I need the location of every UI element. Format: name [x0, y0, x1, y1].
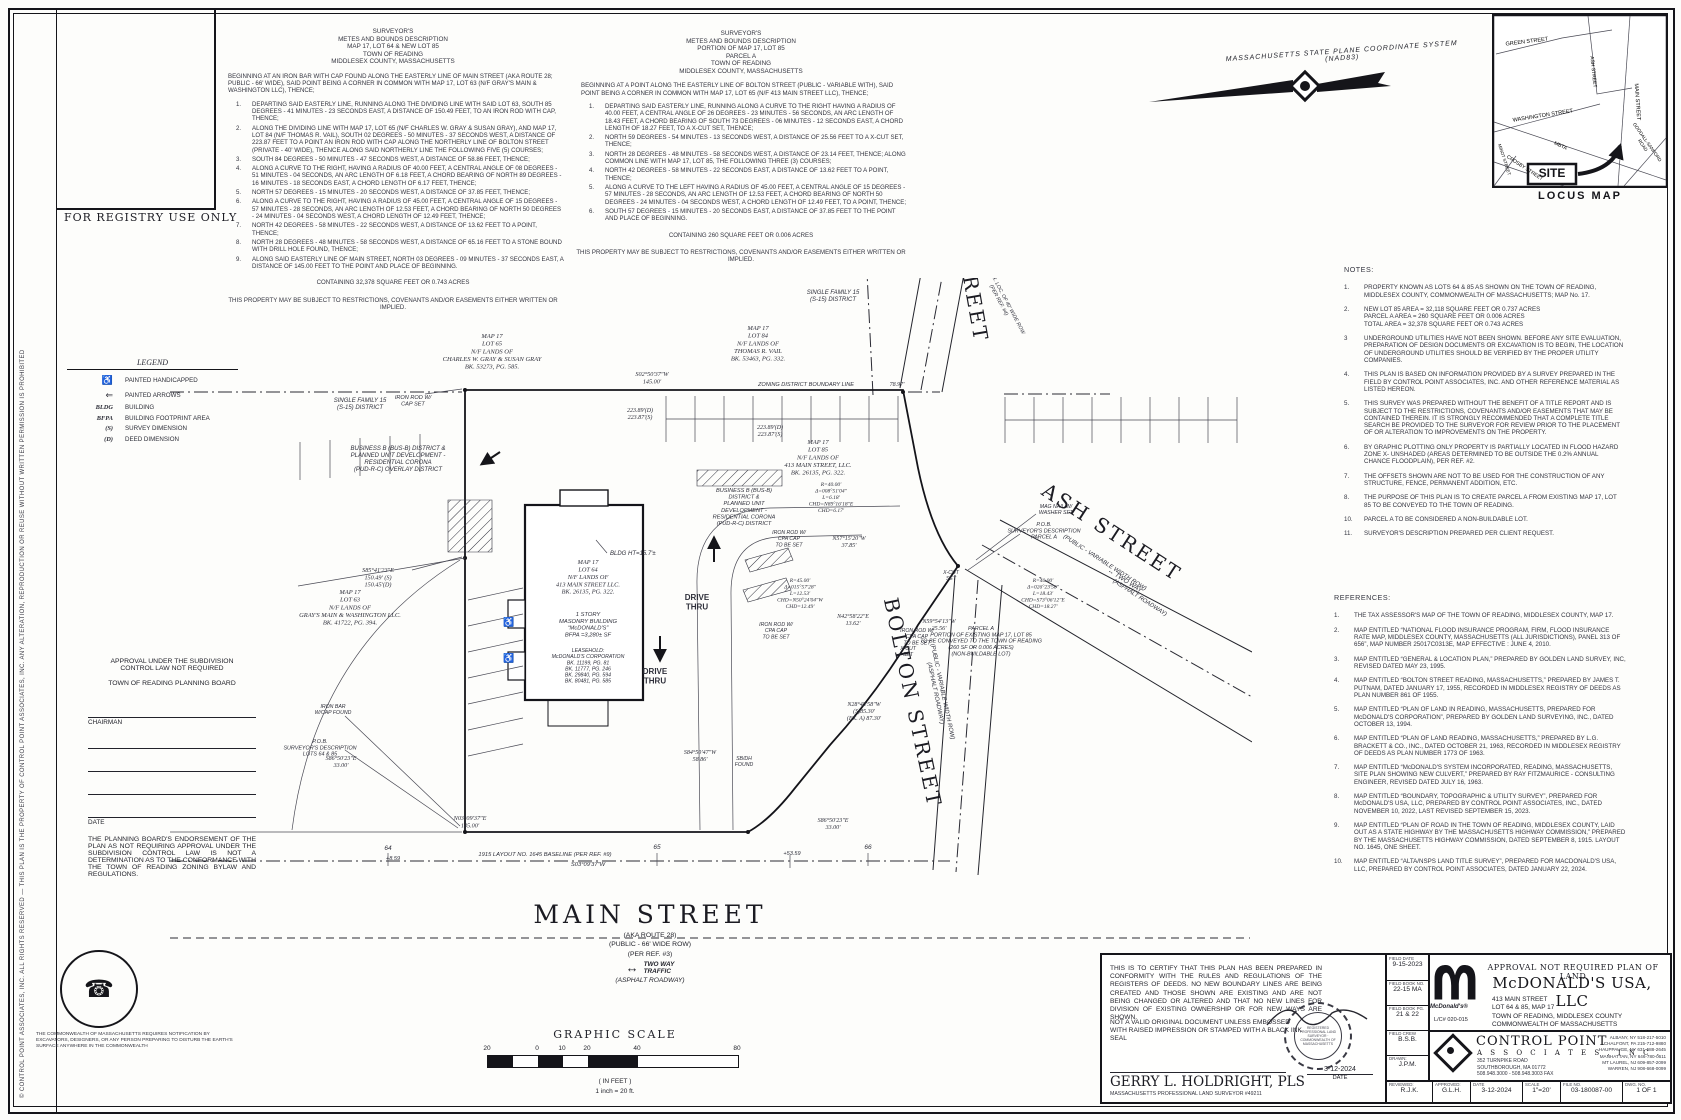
- note-item: 10.PARCEL A TO BE CONSIDERED A NON-BUILD…: [1344, 516, 1624, 523]
- item-text: SOUTH 57 DEGREES - 15 MINUTES - 20 SECON…: [605, 208, 907, 223]
- item-text: MAP ENTITLED “ALTA/NSPS LAND TITLE SURVE…: [1354, 858, 1626, 873]
- description-course: 5.NORTH 57 DEGREES - 15 MINUTES - 20 SEC…: [236, 189, 564, 196]
- note-item: 5.THIS SURVEY WAS PREPARED WITHOUT THE B…: [1344, 400, 1624, 437]
- legend-item: (D)DEED DIMENSION: [65, 436, 240, 443]
- item-text: NORTH 42 DEGREES - 58 MINUTES - 22 SECON…: [605, 167, 907, 182]
- item-text: UNDERGROUND UTILITIES HAVE NOT BEEN SHOW…: [1364, 335, 1624, 364]
- description-2-courses: 1.DEPARTING SAID EASTERLY LINE, RUNNING …: [575, 103, 907, 223]
- item-number: 11.: [1344, 530, 1364, 537]
- item-text: BUILDING: [125, 404, 240, 411]
- notes-list: 1.PROPERTY KNOWN AS LOTS 64 & 85 AS SHOW…: [1344, 284, 1624, 537]
- parking-row-east: [1005, 397, 1237, 443]
- item-text: MAP ENTITLED “PLAN OF ROAD IN THE TOWN O…: [1354, 822, 1626, 851]
- item-text: THIS PLAN IS BASED ON INFORMATION PROVID…: [1364, 371, 1624, 393]
- description-course: 6.SOUTH 57 DEGREES - 15 MINUTES - 20 SEC…: [589, 208, 907, 223]
- surveyor-signature: [1262, 995, 1372, 1035]
- item-number: 4.: [236, 165, 252, 187]
- item-number: 8.: [1344, 494, 1364, 509]
- approved-value: G.L.H.: [1433, 1087, 1470, 1094]
- main-street-name: MAIN STREET: [500, 900, 800, 929]
- item-text: MAP ENTITLED “BOLTON STREET READING, MAS…: [1354, 677, 1626, 699]
- item-number: 5.: [1334, 706, 1354, 728]
- copyright-strip: © CONTROL POINT ASSOCIATES, INC. ALL RIG…: [20, 38, 26, 1098]
- description-course: 2.ALONG THE DIVIDING LINE WITH MAP 17, L…: [236, 125, 564, 154]
- field-book-no-value: 22-15 MA: [1387, 986, 1428, 993]
- item-number: 3.: [589, 151, 605, 166]
- scale-tick: 80: [733, 1045, 740, 1052]
- item-number: 7.: [1344, 473, 1364, 488]
- scale-tick: 20: [583, 1045, 590, 1052]
- painted-arrow-1: [482, 452, 500, 464]
- handicapped-symbol: ♿: [503, 616, 514, 627]
- item-text: ALONG THE DIVIDING LINE WITH MAP 17, LOT…: [252, 125, 564, 154]
- description-2-intro: BEGINNING AT A POINT ALONG THE EASTERLY …: [581, 82, 907, 97]
- note-item: 2.NEW LOT 85 AREA = 32,118 SQUARE FEET O…: [1344, 306, 1624, 328]
- scale-tick: 0: [535, 1045, 539, 1052]
- reference-item: 9.MAP ENTITLED “PLAN OF ROAD IN THE TOWN…: [1334, 822, 1626, 851]
- description-2-area: CONTAINING 260 SQUARE FEET OR 0.006 ACRE…: [575, 232, 907, 239]
- description-1-title: SURVEYOR'S METES AND BOUNDS DESCRIPTION …: [222, 28, 564, 66]
- arrow-icon: ⇐: [65, 390, 125, 401]
- item-text: THE PURPOSE OF THIS PLAN IS TO CREATE PA…: [1364, 494, 1624, 509]
- station-5359: +53.59: [783, 851, 800, 857]
- scale-tick: 10: [558, 1045, 565, 1052]
- item-text: THE OFFSETS SHOWN ARE NOT TO BE USED FOR…: [1364, 473, 1624, 488]
- zoning-s15-top: SINGLE FAMILY 15(S-15) DISTRICT: [807, 290, 860, 303]
- metes-bounds-description-1: SURVEYOR'S METES AND BOUNDS DESCRIPTION …: [222, 28, 564, 311]
- zoning-boundary-line-vertical: [858, 278, 873, 395]
- item-number: 4.: [589, 167, 605, 182]
- legend-title: LEGEND: [67, 358, 238, 370]
- item-number: 5.: [1344, 400, 1364, 437]
- firm-offices: ALBANY, NY 518-217-5010CHALFONT, PA 215-…: [1588, 1035, 1666, 1072]
- item-number: 9.: [1334, 822, 1354, 851]
- description-1-area: CONTAINING 32,378 SQUARE FEET OR 0.743 A…: [222, 279, 564, 286]
- field-crew-value: B.S.B.: [1387, 1036, 1428, 1043]
- hatched-island-2: [745, 548, 793, 572]
- note-item: 8.THE PURPOSE OF THIS PLAN IS TO CREATE …: [1344, 494, 1624, 509]
- item-text: SURVEY DIMENSION: [125, 425, 240, 432]
- description-2-title: SURVEYOR'S METES AND BOUNDS DESCRIPTION …: [575, 30, 907, 75]
- item-text: MAP ENTITLED “GENERAL & LOCATION PLAN,” …: [1354, 656, 1626, 671]
- item-text: NORTH 28 DEGREES - 48 MINUTES - 58 SECON…: [605, 151, 907, 166]
- item-text: PROPERTY KNOWN AS LOTS 64 & 85 AS SHOWN …: [1364, 284, 1624, 299]
- item-number: 8.: [1334, 793, 1354, 815]
- firm-address-3: 508.948.3000 - 508.948.3003 FAX: [1477, 1071, 1553, 1078]
- mcdonalds-brand-text: McDonald's®: [1430, 1004, 1468, 1010]
- hatched-island-1: [448, 500, 492, 552]
- description-course: 1.DEPARTING SAID EASTERLY LINE, RUNNING …: [236, 101, 564, 123]
- dwg-no-value: 1 OF 1: [1623, 1087, 1670, 1094]
- legend-item: BLDGBUILDING: [65, 404, 240, 411]
- date-signature-line: [88, 817, 256, 818]
- approval-statement: APPROVAL UNDER THE SUBDIVISION CONTROL L…: [88, 658, 256, 672]
- note-item: 1.PROPERTY KNOWN AS LOTS 64 & 85 AS SHOW…: [1344, 284, 1624, 299]
- reference-item: 1.THE TAX ASSESSOR'S MAP OF THE TOWN OF …: [1334, 612, 1626, 619]
- dim-n284858w: N28°48'58″W(S)85.30'(EX. A) 87.30': [846, 701, 881, 722]
- legend-item: ♿PAINTED HANDICAPPED: [65, 375, 240, 386]
- two-way-traffic-label: TWO WAY TRAFFIC: [644, 961, 675, 975]
- item-text: BY GRAPHIC PLOTTING ONLY PROPERTY IS PAR…: [1364, 444, 1624, 466]
- curve-data-1: R=40.00'Δ=008°51'04″L=6.18'CHD=N89°16'18…: [809, 481, 854, 514]
- description-course: 7.NORTH 42 DEGREES - 58 MINUTES - 22 SEC…: [236, 222, 564, 237]
- dim-22389-1: 223.89'(D)223.87'(S): [627, 407, 653, 421]
- notes-section: NOTES: 1.PROPERTY KNOWN AS LOTS 64 & 85 …: [1344, 266, 1624, 545]
- surveyor-name: GERRY L. HOLDRIGHT, PLS: [1110, 1074, 1305, 1090]
- note-item: 11.SURVEYOR'S DESCRIPTION PREPARED PER C…: [1344, 530, 1624, 537]
- item-number: 2.: [589, 134, 605, 149]
- field-book-pg-value: 21 & 22: [1387, 1011, 1428, 1018]
- dig-safe-note: THE COMMONWEALTH OF MASSACHUSETTS REQUIR…: [36, 1032, 236, 1050]
- reference-item: 3.MAP ENTITLED “GENERAL & LOCATION PLAN,…: [1334, 656, 1626, 671]
- item-number: 2.: [236, 125, 252, 154]
- references-list: 1.THE TAX ASSESSOR'S MAP OF THE TOWN OF …: [1334, 612, 1626, 872]
- item-number: 3.: [236, 156, 252, 163]
- hatched-island-4: [697, 470, 782, 486]
- legend-symbol: (D): [65, 436, 125, 443]
- reference-item: 10.MAP ENTITLED “ALTA/NSPS LAND TITLE SU…: [1334, 858, 1626, 873]
- item-number: 7.: [236, 222, 252, 237]
- reference-item: 4.MAP ENTITLED “BOLTON STREET READING, M…: [1334, 677, 1626, 699]
- item-text: MAP ENTITLED “PLAN OF LAND IN READING, M…: [1354, 706, 1626, 728]
- parcel-lot-84: MAP 17LOT 84N/F LANDS OFTHOMAS R. VAILBK…: [731, 325, 786, 363]
- item-text: DEPARTING SAID EASTERLY LINE, RUNNING AL…: [605, 103, 907, 132]
- dim-s845047w: S84°50'47″W58.86': [684, 749, 717, 763]
- monument-xcut-1: X-CUTSET: [942, 570, 960, 582]
- item-text: ALONG A CURVE TO THE RIGHT, HAVING A RAD…: [252, 165, 564, 187]
- signature-line-3: [88, 771, 256, 772]
- item-text: PARCEL A TO BE CONSIDERED A NON-BUILDABL…: [1364, 516, 1624, 523]
- item-number: 6.: [236, 198, 252, 220]
- item-number: 8.: [236, 239, 252, 254]
- graphic-scale: GRAPHIC SCALE 20 0 10 20 40 80 ( IN FEET…: [470, 1028, 760, 1095]
- control-point-logo: [1436, 1036, 1466, 1066]
- monument-sbdh-found: SB/DHFOUND: [735, 756, 754, 768]
- date-label: DATE: [88, 819, 256, 826]
- station-65: 65: [653, 844, 661, 851]
- title-block: THIS IS TO CERTIFY THAT THIS PLAN HAS BE…: [1100, 953, 1672, 1104]
- main-street-surface: (ASPHALT ROADWAY): [500, 977, 800, 984]
- description-course: 3.SOUTH 84 DEGREES - 50 MINUTES - 47 SEC…: [236, 156, 564, 163]
- description-1-courses: 1.DEPARTING SAID EASTERLY LINE, RUNNING …: [222, 101, 564, 271]
- legend-symbol: (S): [65, 425, 125, 432]
- scale-note-feet: ( IN FEET ): [470, 1078, 760, 1085]
- pob-lots-64-85: P.O.B.SURVEYOR'S DESCRIPTIONLOTS 64 & 85: [283, 739, 356, 758]
- description-course: 4.NORTH 42 DEGREES - 58 MINUTES - 22 SEC…: [589, 167, 907, 182]
- main-street-sub3: (PER REF. #3): [500, 951, 800, 958]
- station-64: 64: [384, 845, 392, 852]
- item-text: PAINTED ARROWS: [125, 392, 240, 399]
- bldg-height-label: BLDG HT=15.7'±: [610, 551, 656, 557]
- monument-iron-rod-tbs-2: IRON ROD W/CPA CAPTO BE SET: [759, 622, 793, 640]
- description-1-intro: BEGINNING AT AN IRON BAR WITH CAP FOUND …: [228, 73, 564, 95]
- item-number: 4.: [1334, 677, 1354, 699]
- item-text: DEED DIMENSION: [125, 436, 240, 443]
- main-street-sub2: (PUBLIC - 66' WIDE ROW): [500, 941, 800, 948]
- dim-s025037w: S02°50'37″W145.00': [635, 371, 669, 385]
- station-66: 66: [864, 844, 872, 851]
- chairman-label: CHAIRMAN: [88, 719, 256, 726]
- handicapped-symbol: ♿: [503, 652, 514, 663]
- description-course: 2.NORTH 59 DEGREES - 54 MINUTES - 13 SEC…: [589, 134, 907, 149]
- locus-map: GREEN STREETASH STREETMAIN STREETWASHING…: [1492, 14, 1668, 188]
- firm-address: 352 TURNPIKE ROAD SOUTHBOROUGH, MA 01772…: [1477, 1058, 1553, 1078]
- item-number: 1.: [236, 101, 252, 123]
- item-text: NORTH 59 DEGREES - 54 MINUTES - 13 SECON…: [605, 134, 907, 149]
- item-number: 2.: [1334, 627, 1354, 649]
- note-item: 7.THE OFFSETS SHOWN ARE NOT TO BE USED F…: [1344, 473, 1624, 488]
- reference-item: 8.MAP ENTITLED “BOUNDARY, TOPOGRAPHIC & …: [1334, 793, 1626, 815]
- graphic-scale-title: GRAPHIC SCALE: [470, 1028, 760, 1041]
- registry-box: [56, 10, 216, 210]
- item-number: 7.: [1334, 764, 1354, 786]
- item-number: 1.: [589, 103, 605, 132]
- drive-thru-lane-outer: [697, 506, 900, 830]
- zoning-busb-left: BUSINESS B (BUS-B) DISTRICT &PLANNED UNI…: [350, 446, 445, 473]
- endorsement-note: THE PLANNING BOARD'S ENDORSEMENT OF THE …: [88, 836, 256, 878]
- scale-note-ratio: 1 inch = 20 ft.: [470, 1088, 760, 1095]
- phone-shovel-icon: ☎: [84, 975, 114, 1004]
- description-course: 1.DEPARTING SAID EASTERLY LINE, RUNNING …: [589, 103, 907, 132]
- signature-line-2: [88, 748, 256, 749]
- building-vestibule-top: [560, 490, 608, 506]
- chairman-signature-line: [88, 717, 256, 718]
- item-number: 1.: [1334, 612, 1354, 619]
- reference-item: 6.MAP ENTITLED “PLAN OF LAND READING, MA…: [1334, 735, 1626, 757]
- dig-safe-logo: ☎: [60, 950, 138, 1028]
- dim-s865023e-right: S86°50'23″E33.00': [818, 817, 849, 831]
- field-date-value: 9-15-2023: [1387, 961, 1428, 968]
- description-2-disclaimer: THIS PROPERTY MAY BE SUBJECT TO RESTRICT…: [575, 249, 907, 264]
- firm-office: WARREN, NJ 908-668-0099: [1588, 1066, 1666, 1072]
- legend-item: ⇐PAINTED ARROWS: [65, 390, 240, 401]
- legend-items: ♿PAINTED HANDICAPPED⇐PAINTED ARROWSBLDGB…: [65, 375, 240, 443]
- bolton-private-centerline: [921, 278, 962, 390]
- note-item: 3UNDERGROUND UTILITIES HAVE NOT BEEN SHO…: [1344, 335, 1624, 364]
- item-text: SOUTH 84 DEGREES - 50 MINUTES - 47 SECON…: [252, 156, 564, 163]
- item-text: NORTH 57 DEGREES - 15 MINUTES - 20 SECON…: [252, 189, 564, 196]
- curve-data-2: R=40.00'Δ=026°23'56″L=18.43'CHD=S73°06'1…: [1021, 577, 1065, 610]
- item-text: SURVEYOR'S DESCRIPTION PREPARED PER CLIE…: [1364, 530, 1624, 537]
- tb-scale-value: 1″=20': [1523, 1087, 1560, 1094]
- project-address-4: COMMONWEALTH OF MASSACHUSETTS: [1492, 1021, 1622, 1029]
- firm-office: MANHATTAN, NY 646-780-0611: [1588, 1054, 1666, 1060]
- bolton-street-private-name: BOLTON STREET: [933, 278, 994, 344]
- seal-date-label: DATE: [1307, 1074, 1373, 1081]
- references-title: REFERENCES:: [1334, 594, 1626, 602]
- main-street-sub1: (AKA ROUTE 28): [500, 932, 800, 939]
- drive-thru-label-1: DRIVETHRU: [685, 593, 710, 611]
- references-section: REFERENCES: 1.THE TAX ASSESSOR'S MAP OF …: [1334, 594, 1626, 880]
- note-item: 4.THIS PLAN IS BASED ON INFORMATION PROV…: [1344, 371, 1624, 393]
- zoning-busb-right: BUSINESS B (BUS-B)DISTRICT &PLANNED UNIT…: [713, 488, 776, 527]
- scale-bar: [487, 1055, 739, 1068]
- item-number: 10.: [1344, 516, 1364, 523]
- legend-symbol: BFPA: [65, 415, 125, 422]
- registry-label: FOR REGISTRY USE ONLY: [64, 211, 237, 224]
- item-number: 2.: [1344, 306, 1364, 328]
- firm-office: HAUPPAUGE, NY 631-588-2645: [1588, 1047, 1666, 1053]
- item-number: 5.: [589, 184, 605, 206]
- ash-street-edges: [965, 520, 1252, 742]
- bolton-public-centerline: [956, 580, 978, 872]
- tb-date-value: 3-12-2024: [1471, 1087, 1522, 1094]
- item-text: THE TAX ASSESSOR'S MAP OF THE TOWN OF RE…: [1354, 612, 1626, 619]
- item-text: ALONG SAID EASTERLY LINE OF MAIN STREET,…: [252, 256, 564, 271]
- lc-number: L/C# 020-015: [1434, 1017, 1468, 1023]
- item-text: MAP ENTITLED “NATIONAL FLOOD INSURANCE P…: [1354, 627, 1626, 649]
- item-number: 10.: [1334, 858, 1354, 873]
- monument-iron-rod-tbs-1: IRON ROD W/CPA CAPTO BE SET: [772, 530, 806, 548]
- project-address-1: 413 MAIN STREET: [1492, 996, 1622, 1004]
- zoning-s15-left: SINGLE FAMILY 15(S-15) DISTRICT: [334, 398, 387, 411]
- item-text: PAINTED HANDICAPPED: [125, 377, 240, 384]
- baseline-bearing: S03°09'37″W: [571, 862, 606, 868]
- two-way-arrow-icon: ↔: [626, 963, 639, 973]
- reference-item: 5.MAP ENTITLED “PLAN OF LAND IN READING,…: [1334, 706, 1626, 728]
- item-text: NORTH 28 DEGREES - 48 MINUTES - 58 SECON…: [252, 239, 564, 254]
- metes-bounds-description-2: SURVEYOR'S METES AND BOUNDS DESCRIPTION …: [575, 30, 907, 264]
- parcel-lot-65: MAP 17LOT 65N/F LANDS OFCHARLES W. GRAY …: [443, 333, 543, 371]
- planning-board-name: TOWN OF READING PLANNING BOARD: [88, 680, 256, 687]
- item-text: THIS SURVEY WAS PREPARED WITHOUT THE BEN…: [1364, 400, 1624, 437]
- station-859: +8.59: [386, 856, 400, 862]
- item-number: 9.: [236, 256, 252, 271]
- item-number: 6.: [589, 208, 605, 223]
- site-label: SITE: [1528, 166, 1576, 180]
- reference-item: 7.MAP ENTITLED “McDONALD'S SYSTEM INCORP…: [1334, 764, 1626, 786]
- baseline-label: 1915 LAYOUT NO. 1645 BASELINE (PER REF. …: [478, 852, 611, 858]
- handicapped-icon: ♿: [65, 375, 125, 386]
- item-text: MAP ENTITLED “PLAN OF LAND READING, MASS…: [1354, 735, 1626, 757]
- scale-tick: 20: [483, 1045, 490, 1052]
- item-number: 3.: [1334, 656, 1354, 671]
- description-course: 3.NORTH 28 DEGREES - 48 MINUTES - 58 SEC…: [589, 151, 907, 166]
- survey-plan-sheet: © CONTROL POINT ASSOCIATES, INC. ALL RIG…: [0, 0, 1681, 1120]
- legend: LEGEND ♿PAINTED HANDICAPPED⇐PAINTED ARRO…: [65, 358, 240, 446]
- site-plan-drawing: MAP 17LOT 65N/F LANDS OFCHARLES W. GRAY …: [160, 278, 1252, 1000]
- item-text: NORTH 42 DEGREES - 58 MINUTES - 22 SECON…: [252, 222, 564, 237]
- zoning-boundary-line: [170, 392, 1110, 394]
- description-1-disclaimer: THIS PROPERTY MAY BE SUBJECT TO RESTRICT…: [222, 297, 564, 312]
- description-course: 9.ALONG SAID EASTERLY LINE OF MAIN STREE…: [236, 256, 564, 271]
- reviewed-value: R.J.K.: [1387, 1087, 1432, 1094]
- dim-s854123e: S85°41'23″E150.49' (S)150.45'(D): [362, 567, 394, 589]
- item-number: 5.: [236, 189, 252, 196]
- scale-tick: 40: [633, 1045, 640, 1052]
- note-item: 6.BY GRAPHIC PLOTTING ONLY PROPERTY IS P…: [1344, 444, 1624, 466]
- legend-item: (S)SURVEY DIMENSION: [65, 425, 240, 432]
- dim-n571520w: N57°15'20″W37.85': [831, 535, 866, 549]
- approval-block: APPROVAL UNDER THE SUBDIVISION CONTROL L…: [88, 658, 256, 878]
- item-text: ALONG A CURVE TO THE LEFT HAVING A RADIU…: [605, 184, 907, 206]
- monument-iron-rod-set: IRON ROD W/CAP SET: [395, 395, 433, 408]
- project-address-3: TOWN OF READING, MIDDLESEX COUNTY: [1492, 1013, 1622, 1021]
- mcdonalds-logo: [1432, 959, 1478, 1003]
- item-number: 6.: [1334, 735, 1354, 757]
- building-patio: [548, 700, 608, 726]
- main-street-label-block: MAIN STREET (AKA ROUTE 28) (PUBLIC - 66'…: [500, 900, 800, 984]
- legend-symbol: BLDG: [65, 404, 125, 411]
- project-address: 413 MAIN STREET LOT 64 & 85, MAP 17 TOWN…: [1492, 996, 1622, 1029]
- item-text: ALONG A CURVE TO THE RIGHT, HAVING A RAD…: [252, 198, 564, 220]
- description-course: 8.NORTH 28 DEGREES - 48 MINUTES - 58 SEC…: [236, 239, 564, 254]
- description-course: 6.ALONG A CURVE TO THE RIGHT, HAVING A R…: [236, 198, 564, 220]
- description-course: 4.ALONG A CURVE TO THE RIGHT, HAVING A R…: [236, 165, 564, 187]
- monument-iron-bar-found: IRON BARW/CAP FOUND: [315, 704, 352, 716]
- project-address-2: LOT 64 & 85, MAP 17: [1492, 1004, 1622, 1012]
- dim-22389-2: 223.89'(D)223.87'(S): [757, 424, 783, 438]
- file-no-value: 03-180087-00: [1561, 1087, 1622, 1094]
- item-text: MAP ENTITLED “BOUNDARY, TOPOGRAPHIC & UT…: [1354, 793, 1626, 815]
- locus-map-title: LOCUS MAP: [1492, 190, 1668, 202]
- item-text: MAP ENTITLED “McDONALD'S SYSTEM INCORPOR…: [1354, 764, 1626, 786]
- item-number: 1.: [1344, 284, 1364, 299]
- zoning-boundary-label: ZONING DISTRICT BOUNDARY LINE: [757, 382, 854, 388]
- item-text: DEPARTING SAID EASTERLY LINE, RUNNING AL…: [252, 101, 564, 123]
- item-number: 3: [1344, 335, 1364, 364]
- dim-n425822e: N42°58'22″E13.62': [836, 613, 869, 627]
- dim-7897: 78.97': [890, 382, 906, 388]
- parcel-lot-85: MAP 17LOT 85N/F LANDS OF413 MAIN STREET,…: [784, 439, 852, 477]
- legend-item: BFPABUILDING FOOTPRINT AREA: [65, 415, 240, 422]
- abutter-driveway-curve: [292, 560, 460, 830]
- description-course: 5.ALONG A CURVE TO THE LEFT HAVING A RAD…: [589, 184, 907, 206]
- drawn-value: J.P.M.: [1387, 1061, 1428, 1068]
- surveyor-signature-line: [1110, 1072, 1286, 1073]
- signature-line-4: [88, 794, 256, 795]
- reference-item: 2.MAP ENTITLED “NATIONAL FLOOD INSURANCE…: [1334, 627, 1626, 649]
- drive-thru-label-2: DRIVETHRU: [643, 667, 668, 685]
- parcel-lot-63: MAP 17LOT 63N/F LANDS OFGRAY'S MAIN & WA…: [299, 589, 401, 627]
- item-number: 4.: [1344, 371, 1364, 393]
- seal-date: 3-12-2024: [1307, 1066, 1373, 1073]
- notes-title: NOTES:: [1344, 266, 1624, 274]
- surveyor-license: MASSACHUSETTS PROFESSIONAL LAND SURVEYOR…: [1110, 1091, 1262, 1097]
- item-text: NEW LOT 85 AREA = 32,118 SQUARE FEET OR …: [1364, 306, 1624, 328]
- item-number: 6.: [1344, 444, 1364, 466]
- item-text: BUILDING FOOTPRINT AREA: [125, 415, 240, 422]
- dim-n030937e: N03°09'37″E145.00': [453, 815, 487, 829]
